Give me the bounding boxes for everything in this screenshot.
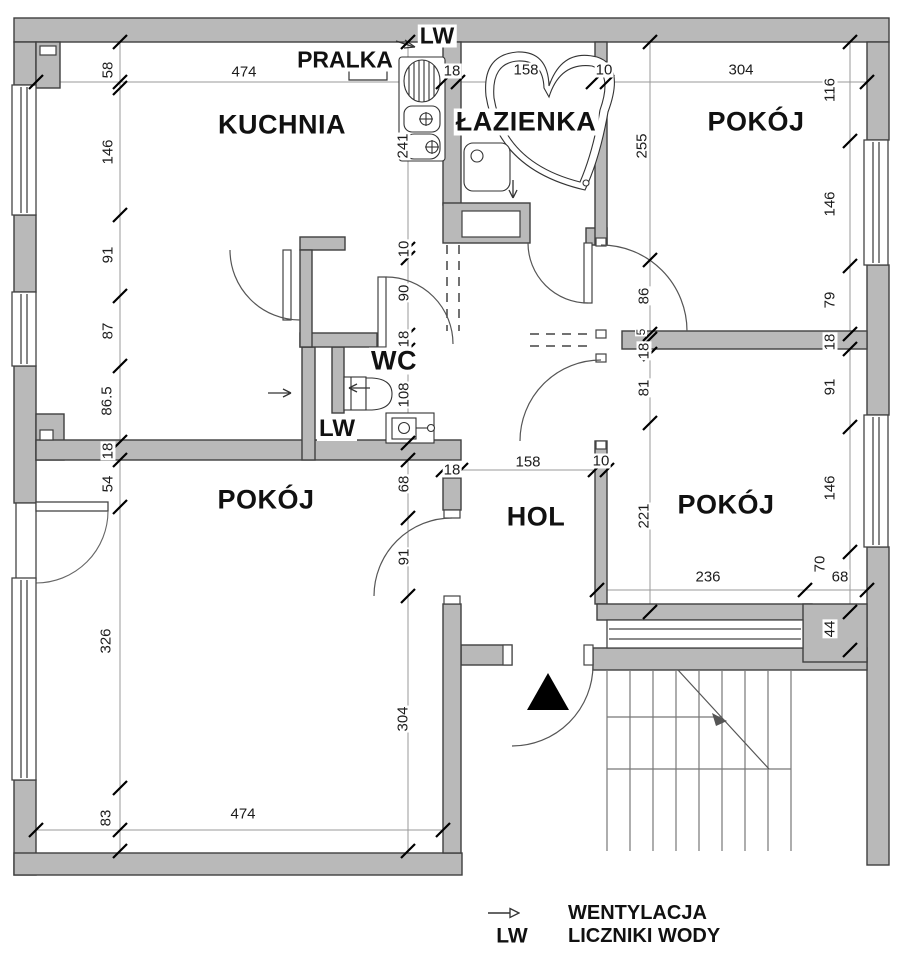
room-label-top-right: POKÓJ xyxy=(705,109,806,136)
water-meter-label-wc: LW xyxy=(317,417,357,441)
legend-ventilation-label: WENTYLACJA xyxy=(566,903,709,923)
dimension-label: 18 xyxy=(101,442,116,461)
dimension-label: 18 xyxy=(637,342,652,361)
floor-plan-page: KUCHNIA ŁAZIENKA POKÓJ WC HOL POKÓJ POKÓ… xyxy=(0,0,900,955)
dimension-label: 5 xyxy=(635,328,647,337)
dimension-label: 158 xyxy=(514,455,541,470)
washer-label: PRALKA xyxy=(295,49,395,72)
dimension-label: 18 xyxy=(823,333,838,352)
dimension-label: 241 xyxy=(396,132,411,159)
room-label-bathroom: ŁAZIENKA xyxy=(454,109,599,136)
room-label-bottom-right: POKÓJ xyxy=(675,492,776,519)
dimension-label: 87 xyxy=(101,322,116,341)
dimension-label: 83 xyxy=(99,809,114,828)
dimension-label: 10 xyxy=(595,63,614,78)
dimension-label: 18 xyxy=(397,330,412,349)
dimension-label: 58 xyxy=(101,61,116,80)
dimension-label: 326 xyxy=(99,627,114,654)
dimension-label: 70 xyxy=(813,555,828,574)
legend-lw-label: LICZNIKI WODY xyxy=(566,926,722,946)
labels-layer: KUCHNIA ŁAZIENKA POKÓJ WC HOL POKÓJ POKÓ… xyxy=(0,0,900,955)
dimension-label: 146 xyxy=(101,138,116,165)
water-meter-label-top: LW xyxy=(418,25,457,48)
dimension-label: 255 xyxy=(635,132,650,159)
room-label-bottom-left: POKÓJ xyxy=(215,487,316,514)
ventilation-arrow-icon xyxy=(486,906,520,920)
dimension-label: 474 xyxy=(230,65,257,80)
dimension-label: 68 xyxy=(397,475,412,494)
dimension-label: 81 xyxy=(637,379,652,398)
room-label-kitchen: KUCHNIA xyxy=(216,112,348,139)
dimension-label: 236 xyxy=(694,570,721,585)
dimension-label: 304 xyxy=(396,705,411,732)
dimension-label: 86.5 xyxy=(100,385,115,416)
dimension-label: 54 xyxy=(101,475,116,494)
dimension-label: 304 xyxy=(727,63,754,78)
dimension-label: 10 xyxy=(592,454,611,469)
dimension-label: 86 xyxy=(637,287,652,306)
dimension-label: 10 xyxy=(397,240,412,259)
dimension-label: 474 xyxy=(229,807,256,822)
legend-lw-abbr: LW xyxy=(494,926,530,947)
room-label-wc: WC xyxy=(369,348,419,375)
dimension-label: 221 xyxy=(637,502,652,529)
dimension-label: 108 xyxy=(397,381,412,408)
dimension-label: 91 xyxy=(823,378,838,397)
dimension-label: 146 xyxy=(823,474,838,501)
dimension-label: 18 xyxy=(443,463,462,478)
dimension-label: 90 xyxy=(397,284,412,303)
dimension-label: 44 xyxy=(823,620,838,639)
dimension-label: 91 xyxy=(397,548,412,567)
dimension-label: 18 xyxy=(443,64,462,79)
dimension-label: 158 xyxy=(512,63,539,78)
room-label-hall: HOL xyxy=(505,504,568,531)
dimension-label: 146 xyxy=(823,190,838,217)
dimension-label: 116 xyxy=(823,77,838,103)
dimension-label: 91 xyxy=(101,246,116,265)
dimension-label: 68 xyxy=(831,570,850,585)
dimension-label: 79 xyxy=(823,291,838,310)
